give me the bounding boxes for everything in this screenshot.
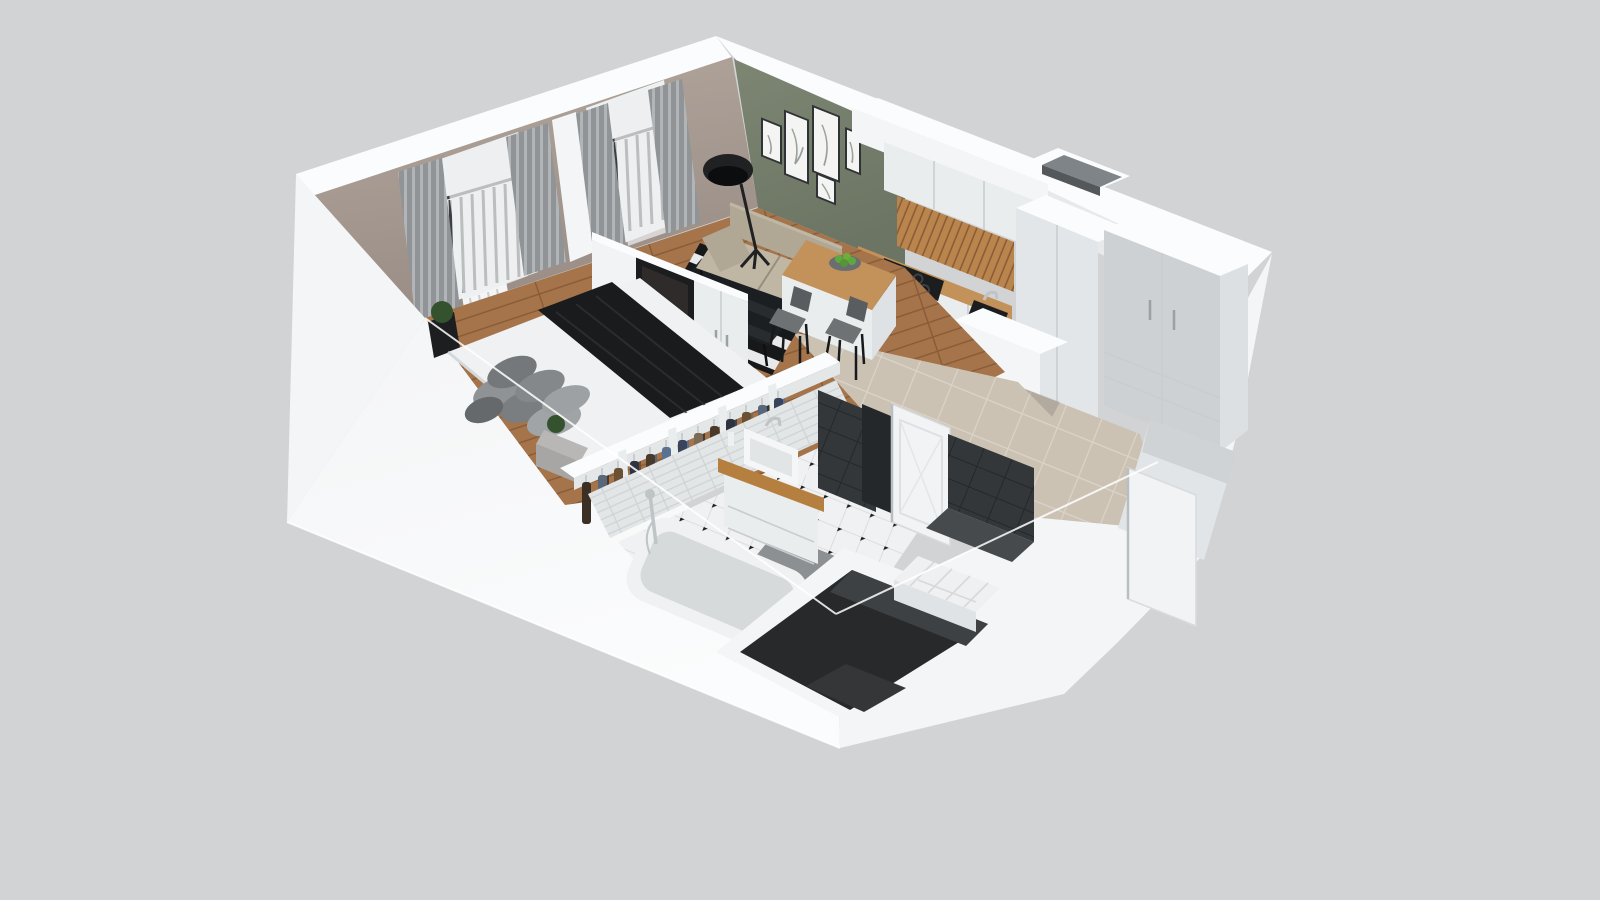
framed-print [813, 106, 839, 181]
front-door-open [1128, 468, 1196, 626]
framed-print [762, 119, 781, 164]
wardrobe-side [1220, 264, 1248, 452]
toiletry-bottle [806, 470, 812, 484]
apartment-isometric-scene [0, 0, 1600, 900]
clothes-item [582, 482, 591, 524]
toiletry-bottle [728, 432, 734, 446]
floorplan-render [0, 0, 1600, 900]
